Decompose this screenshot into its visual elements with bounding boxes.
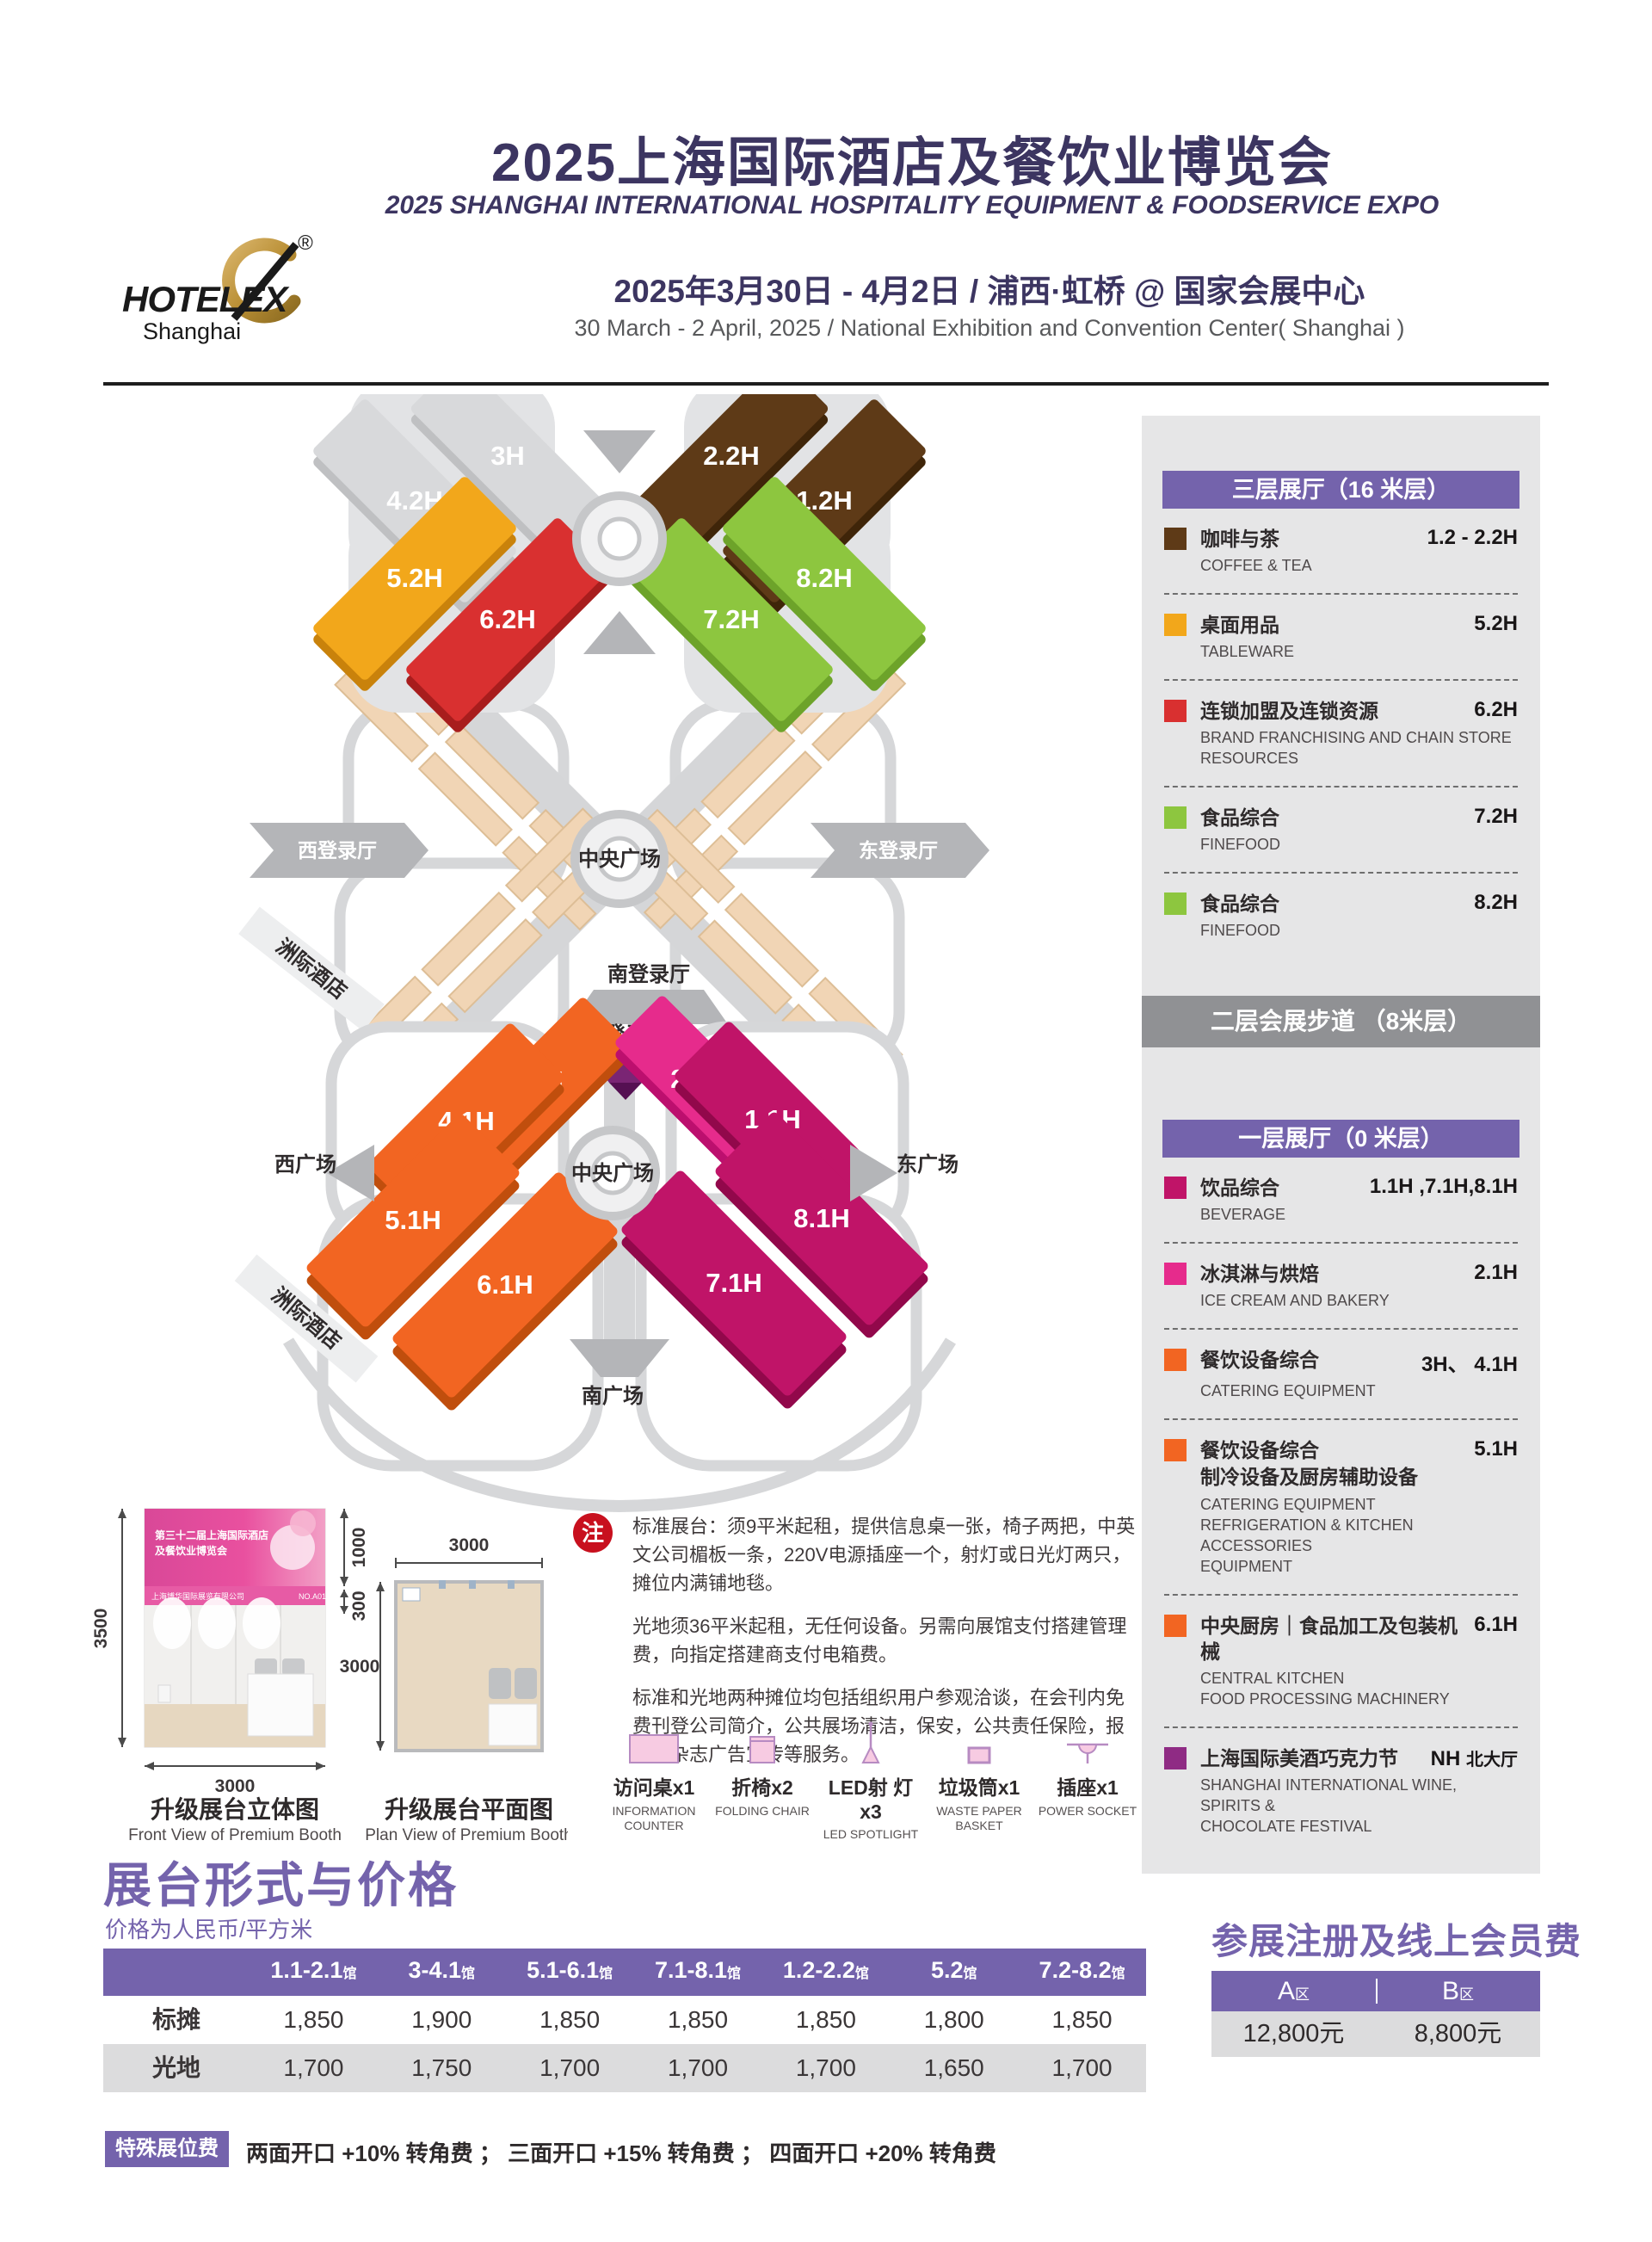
svg-text:Plan View of Premium Booth: Plan View of Premium Booth bbox=[365, 1826, 568, 1844]
svg-text:5.1H: 5.1H bbox=[385, 1205, 441, 1235]
equipment-power-socket: 插座x1 POWER SOCKET bbox=[1036, 1720, 1139, 1842]
booth-front-view: 第三十二届上海国际酒店 及餐饮业博览会 上海博华国际展览有限公司 NO.A01 … bbox=[91, 1509, 369, 1844]
legend-item-finefood-82: 食品综合 8.2H FINEFOOD bbox=[1142, 874, 1540, 954]
pricing-col-header: 7.1-8.1馆 bbox=[634, 1947, 762, 1998]
legend-swatch bbox=[1164, 1747, 1187, 1770]
legend-swatch bbox=[1164, 806, 1187, 829]
svg-text:3000: 3000 bbox=[449, 1535, 490, 1555]
page-title-en: 2025 SHANGHAI INTERNATIONAL HOSPITALITY … bbox=[224, 191, 1600, 220]
equipment-led-spotlight: LED射 灯x3 LED SPOTLIGHT bbox=[819, 1720, 922, 1842]
svg-text:7.2H: 7.2H bbox=[703, 604, 759, 634]
pricing-col-header: 7.2-8.2馆 bbox=[1018, 1947, 1146, 1998]
svg-text:7.1H: 7.1H bbox=[706, 1268, 761, 1298]
svg-text:300: 300 bbox=[349, 1590, 369, 1621]
zone-b-fee: 8,800元 bbox=[1376, 2011, 1540, 2057]
pricing-row-rawspace: 光地 1,700 1,750 1,700 1,700 1,700 1,650 1… bbox=[103, 2044, 1146, 2092]
svg-text:1000: 1000 bbox=[349, 1528, 369, 1568]
legend-swatch bbox=[1164, 1263, 1187, 1285]
svg-text:西登录厅: 西登录厅 bbox=[298, 839, 377, 862]
legend-item-franchising: 连锁加盟及连锁资源 6.2H BRAND FRANCHISING AND CHA… bbox=[1142, 681, 1540, 782]
legend-swatch bbox=[1164, 614, 1187, 636]
zone-a-header: A区 bbox=[1211, 1971, 1376, 2011]
power-socket-icon bbox=[1036, 1720, 1139, 1766]
legend-item-icecream-bakery: 冰淇淋与烘焙 2.1H ICE CREAM AND BAKERY bbox=[1142, 1244, 1540, 1325]
note-p2: 光地须36平米起租，无任何设备。另需向展馆支付搭建管理费，向指定搭建商支付电箱费… bbox=[632, 1612, 1142, 1669]
special-fee-badge: 特殊展位费 bbox=[105, 2131, 229, 2167]
zone-b-header: B区 bbox=[1376, 1971, 1540, 2011]
special-fee-text: 两面开口 +10% 转角费 ； 三面开口 +15% 转角费 ； 四面开口 +20… bbox=[246, 2136, 996, 2168]
booth-plan-view: 3000 3000 升级展台平面图 Plan View of Premium B… bbox=[340, 1535, 568, 1844]
equipment-info-counter: 访问桌x1 INFORMATION COUNTER bbox=[602, 1720, 706, 1842]
legend-swatch bbox=[1164, 1439, 1187, 1461]
legend-floor1-title: 一层展厅（0 米层） bbox=[1162, 1120, 1519, 1158]
folding-chair-icon bbox=[711, 1720, 814, 1766]
central-plaza-8m: 中央广场 bbox=[575, 814, 664, 904]
svg-text:第三十二届上海国际酒店: 第三十二届上海国际酒店 bbox=[155, 1529, 268, 1541]
legend-item-tableware: 桌面用品 5.2H TABLEWARE bbox=[1142, 595, 1540, 676]
equipment-waste-basket: 垃圾筒x1 WASTE PAPER BASKET bbox=[928, 1720, 1031, 1842]
svg-text:3500: 3500 bbox=[91, 1609, 111, 1649]
information-counter-icon bbox=[602, 1720, 706, 1766]
svg-text:3000: 3000 bbox=[215, 1776, 256, 1796]
equipment-folding-chair: 折椅x2 FOLDING CHAIR bbox=[711, 1720, 814, 1842]
expo-poster: ® HOTELEX Shanghai 2025上海国际酒店及餐饮业博览会 202… bbox=[0, 0, 1652, 2242]
page-title-cn: 2025上海国际酒店及餐饮业博览会 bbox=[224, 119, 1600, 196]
svg-text:8.1H: 8.1H bbox=[793, 1203, 849, 1233]
floor3-level: 3H 4.2H 2.2H 1.2H 5.2H bbox=[311, 394, 928, 734]
svg-text:中央广场: 中央广场 bbox=[578, 847, 661, 871]
header-divider bbox=[1376, 1979, 1378, 2004]
svg-text:东登录厅: 东登录厅 bbox=[859, 839, 938, 862]
svg-text:南登录厅: 南登录厅 bbox=[607, 963, 690, 986]
svg-text:升级展台立体图: 升级展台立体图 bbox=[151, 1795, 319, 1823]
floor1-level: 北登录厅 3H 4.1H 5.1H bbox=[235, 994, 959, 1506]
legend-swatch bbox=[1164, 1349, 1187, 1371]
legend-swatch bbox=[1164, 700, 1187, 722]
waste-paper-basket-icon bbox=[928, 1720, 1031, 1766]
pricing-subtitle: 价格为人民币/平方米 bbox=[105, 1912, 312, 1944]
central-plaza-0m: 中央广场 bbox=[570, 1130, 656, 1216]
pricing-row-standard: 标摊 1,850 1,900 1,850 1,850 1,850 1,800 1… bbox=[103, 1996, 1146, 2044]
svg-text:6.2H: 6.2H bbox=[479, 604, 535, 634]
legend-item-beverage: 饮品综合 1.1H ,7.1H,8.1H BEVERAGE bbox=[1142, 1158, 1540, 1238]
svg-text:及餐饮业博览会: 及餐饮业博览会 bbox=[155, 1544, 228, 1557]
logo-wordmark: HOTELEX bbox=[122, 279, 287, 320]
pricing-header-row: 1.1-2.1馆 3-4.1馆 5.1-6.1馆 7.1-8.1馆 1.2-2.… bbox=[103, 1949, 1146, 1996]
legend-swatch bbox=[1164, 528, 1187, 550]
legend-item-central-kitchen: 中央厨房｜食品加工及包装机械 6.1H CENTRAL KITCHEN FOOD… bbox=[1142, 1596, 1540, 1723]
pricing-table: 1.1-2.1馆 3-4.1馆 5.1-6.1馆 7.1-8.1馆 1.2-2.… bbox=[103, 1949, 1146, 2092]
pricing-col-header: 5.2馆 bbox=[890, 1947, 1018, 1998]
svg-text:南广场: 南广场 bbox=[582, 1384, 644, 1408]
svg-text:西广场: 西广场 bbox=[274, 1152, 336, 1177]
logo-subtitle: Shanghai bbox=[143, 318, 241, 345]
svg-text:3H: 3H bbox=[490, 441, 525, 471]
svg-text:3000: 3000 bbox=[340, 1657, 380, 1677]
hotelex-logo: ® HOTELEX Shanghai bbox=[86, 234, 344, 346]
registration-table: A区 B区 12,800元 8,800元 bbox=[1211, 1971, 1540, 2057]
registration-title: 参展注册及线上会员费 bbox=[1211, 1912, 1581, 1965]
svg-text:Front View of Premium Booth: Front View of Premium Booth bbox=[128, 1826, 342, 1844]
svg-text:中央广场: 中央广场 bbox=[571, 1161, 654, 1185]
event-date-en: 30 March - 2 April, 2025 / National Exhi… bbox=[361, 315, 1618, 342]
note-badge: 注 bbox=[573, 1513, 613, 1553]
legend-item-coffee-tea: 咖啡与茶 1.2 - 2.2H COFFEE & TEA bbox=[1142, 509, 1540, 590]
registration-header: A区 B区 bbox=[1211, 1971, 1540, 2011]
pricing-col-header: 1.2-2.2馆 bbox=[761, 1947, 890, 1998]
svg-text:5.2H: 5.2H bbox=[386, 563, 442, 593]
svg-text:6.1H: 6.1H bbox=[477, 1269, 533, 1300]
svg-text:2.2H: 2.2H bbox=[703, 441, 759, 471]
legend-swatch bbox=[1164, 1177, 1187, 1199]
svg-text:NO.A01: NO.A01 bbox=[299, 1592, 326, 1601]
legend-item-catering-equipment: 餐饮设备综合 3H、 4.1H CATERING EQUIPMENT bbox=[1142, 1330, 1540, 1415]
east-entry-hall: 东登录厅 bbox=[811, 823, 989, 878]
event-date-cn: 2025年3月30日 - 4月2日 / 浦西·虹桥 @ 国家会展中心 bbox=[361, 265, 1618, 312]
legend-item-wine-chocolate: 上海国际美酒巧克力节 NH 北大厅 SHANGHAI INTERNATIONAL… bbox=[1142, 1728, 1540, 1850]
legend-floor2-title: 二层会展步道 （8米层） bbox=[1142, 996, 1540, 1047]
note-p1: 标准展台：须9平米起租，提供信息桌一张，椅子两把，中英文公司楣板一条，220V电… bbox=[632, 1512, 1142, 1597]
legend-item-finefood-72: 食品综合 7.2H FINEFOOD bbox=[1142, 787, 1540, 868]
led-spotlight-icon bbox=[819, 1720, 922, 1766]
legend-swatch bbox=[1164, 1615, 1187, 1637]
registration-values: 12,800元 8,800元 bbox=[1211, 2011, 1540, 2057]
zone-a-fee: 12,800元 bbox=[1211, 2011, 1376, 2057]
west-entry-hall: 西登录厅 bbox=[250, 823, 428, 878]
pricing-col-header: 3-4.1馆 bbox=[378, 1947, 506, 1998]
legend-swatch bbox=[1164, 892, 1187, 915]
pricing-col-header: 5.1-6.1馆 bbox=[506, 1947, 634, 1998]
equipment-legend: 访问桌x1 INFORMATION COUNTER 折椅x2 FOLDING C… bbox=[602, 1720, 1139, 1842]
registered-mark: ® bbox=[298, 232, 313, 255]
svg-text:东广场: 东广场 bbox=[897, 1152, 959, 1177]
legend-item-refrigeration: 餐饮设备综合 5.1H 制冷设备及厨房辅助设备 CATERING EQUIPME… bbox=[1142, 1420, 1540, 1590]
legend-floor3-title: 三层展厅（16 米层） bbox=[1162, 471, 1519, 509]
header-divider bbox=[103, 382, 1549, 386]
pricing-title: 展台形式与价格 bbox=[103, 1847, 459, 1917]
svg-text:升级展台平面图: 升级展台平面图 bbox=[385, 1795, 553, 1823]
floor-plan-map: 西登录厅 东登录厅 中央广场 南登录厅 洲际酒店 bbox=[112, 394, 1127, 1513]
pricing-col-header: 1.1-2.1馆 bbox=[250, 1947, 378, 1998]
legend-panel: 三层展厅（16 米层） 咖啡与茶 1.2 - 2.2H COFFEE & TEA… bbox=[1142, 416, 1540, 1874]
svg-text:8.2H: 8.2H bbox=[796, 563, 852, 593]
booth-diagrams: 第三十二届上海国际酒店 及餐饮业博览会 上海博华国际展览有限公司 NO.A01 … bbox=[86, 1455, 568, 1868]
